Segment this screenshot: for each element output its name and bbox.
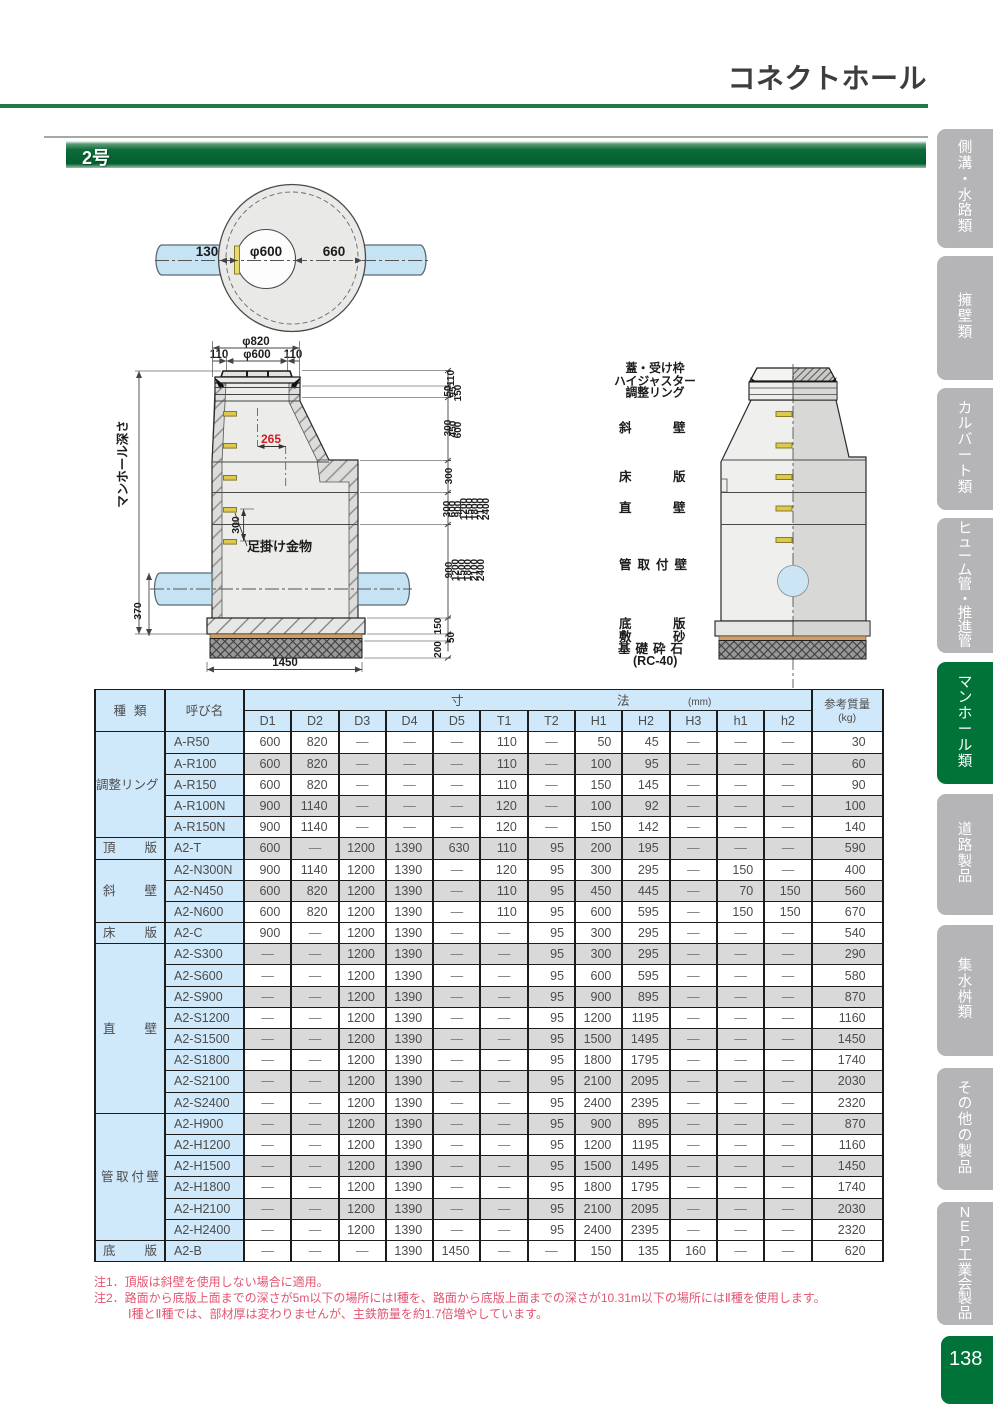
svg-text:(RC-40): (RC-40) [633,654,677,668]
svg-text:壁: 壁 [673,420,686,435]
svg-text:2400: 2400 [481,497,492,520]
svg-text:直: 直 [619,500,632,515]
svg-text:265: 265 [261,432,281,446]
svg-text:壁: 壁 [673,500,686,515]
svg-text:φ600: φ600 [243,349,270,361]
svg-text:150: 150 [433,617,444,634]
svg-text:600: 600 [453,421,464,438]
svg-text:版: 版 [673,469,686,484]
svg-text:床: 床 [619,469,632,484]
svg-text:φ820: φ820 [242,336,269,348]
svg-text:50: 50 [446,632,457,644]
svg-text:斜: 斜 [618,420,632,435]
svg-text:150: 150 [453,384,464,401]
svg-text:300: 300 [444,467,455,484]
svg-text:110: 110 [446,369,457,386]
svg-text:底: 底 [619,616,632,631]
svg-text:300: 300 [230,516,242,534]
svg-text:200: 200 [433,641,444,658]
svg-text:φ600: φ600 [250,244,282,259]
svg-text:660: 660 [323,244,346,259]
svg-text:足掛け金物: 足掛け金物 [247,539,312,554]
svg-text:管取付壁: 管取付壁 [619,557,693,572]
svg-text:版: 版 [673,616,686,631]
svg-text:2400: 2400 [476,558,487,581]
svg-text:調整リング: 調整リング [626,386,685,400]
svg-text:370: 370 [132,602,144,620]
svg-text:蓋・受け枠: 蓋・受け枠 [626,361,685,375]
svg-text:マンホール深さ: マンホール深さ [115,420,130,508]
svg-text:1450: 1450 [272,657,298,669]
svg-text:130: 130 [196,244,219,259]
